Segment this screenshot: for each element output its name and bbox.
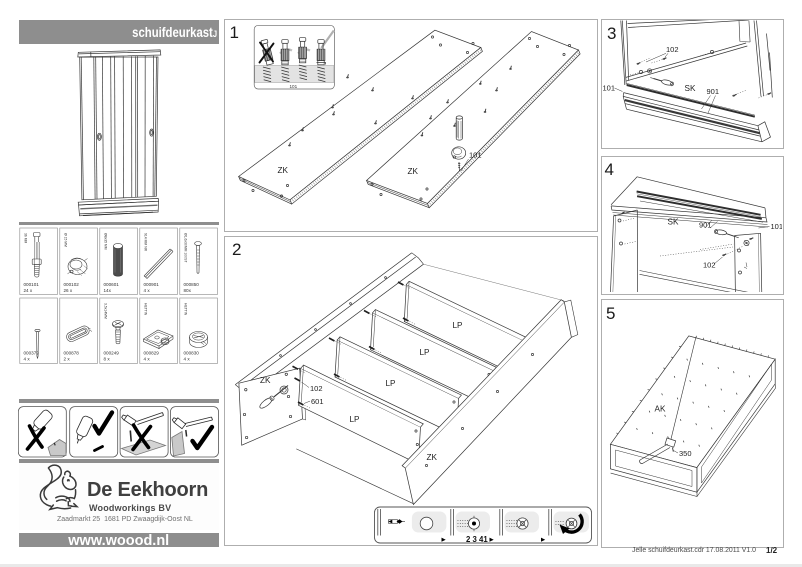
svg-text:14x: 14x [104, 288, 112, 293]
svg-text:4 x: 4 x [144, 357, 151, 362]
svg-text:000379: 000379 [24, 351, 40, 356]
svg-text:80x: 80x [184, 288, 192, 293]
svg-text:4 x: 4 x [144, 288, 151, 293]
svg-text:HETTIN: HETTIN [144, 303, 148, 316]
svg-text:LP: LP [385, 379, 396, 388]
svg-text:000101: 000101 [24, 282, 40, 287]
svg-text:36 MM: 36 MM [24, 233, 28, 244]
svg-text:LP: LP [419, 348, 430, 357]
svg-text:000850: 000850 [184, 282, 200, 287]
svg-text:101: 101 [469, 150, 482, 159]
svg-text:ZK: ZK [407, 167, 418, 176]
svg-text:2 3 41: 2 3 41 [466, 535, 488, 544]
svg-text:8 x: 8 x [104, 357, 111, 362]
svg-text:24 x: 24 x [24, 288, 33, 293]
svg-text:601: 601 [311, 397, 324, 406]
svg-text:AK: AK [655, 404, 666, 413]
svg-text:914 MM NR: 914 MM NR [144, 233, 148, 252]
svg-text:Ø8x35 MM: Ø8x35 MM [104, 233, 108, 250]
svg-text:102: 102 [310, 384, 323, 393]
svg-text:3,5x14MM: 3,5x14MM [104, 303, 108, 319]
svg-text:000830: 000830 [184, 351, 200, 356]
svg-text:4 x: 4 x [24, 357, 31, 362]
svg-text:101: 101 [603, 83, 616, 92]
svg-text:ZK: ZK [260, 376, 271, 385]
svg-text:000878: 000878 [64, 351, 80, 356]
svg-text:ZK: ZK [277, 166, 288, 175]
svg-text:SK: SK [668, 217, 679, 226]
svg-text:000102: 000102 [64, 282, 80, 287]
svg-text:4 x: 4 x [184, 357, 191, 362]
svg-text:LP: LP [452, 321, 463, 330]
svg-text:101: 101 [771, 222, 783, 231]
svg-text:LP: LP [349, 415, 360, 424]
svg-text:26 x: 26 x [64, 288, 73, 293]
svg-text:102: 102 [666, 45, 679, 54]
svg-text:102: 102 [703, 260, 716, 269]
svg-text:350: 350 [679, 449, 692, 458]
svg-text:101: 101 [289, 83, 297, 88]
svg-text:000249: 000249 [104, 351, 120, 356]
svg-text:ZK: ZK [426, 453, 437, 462]
svg-text:901: 901 [699, 220, 712, 229]
svg-text:HETTIN: HETTIN [184, 303, 188, 316]
svg-text:Ø 15 MM: Ø 15 MM [64, 233, 68, 247]
svg-text:Ø1,6x30MM 100ST: Ø1,6x30MM 100ST [184, 233, 188, 262]
svg-text:000601: 000601 [104, 282, 120, 287]
svg-text:000829: 000829 [144, 351, 160, 356]
svg-text:2 x: 2 x [64, 357, 71, 362]
svg-text:901: 901 [707, 87, 720, 96]
svg-text:000901: 000901 [144, 282, 160, 287]
svg-text:SK: SK [685, 84, 696, 93]
